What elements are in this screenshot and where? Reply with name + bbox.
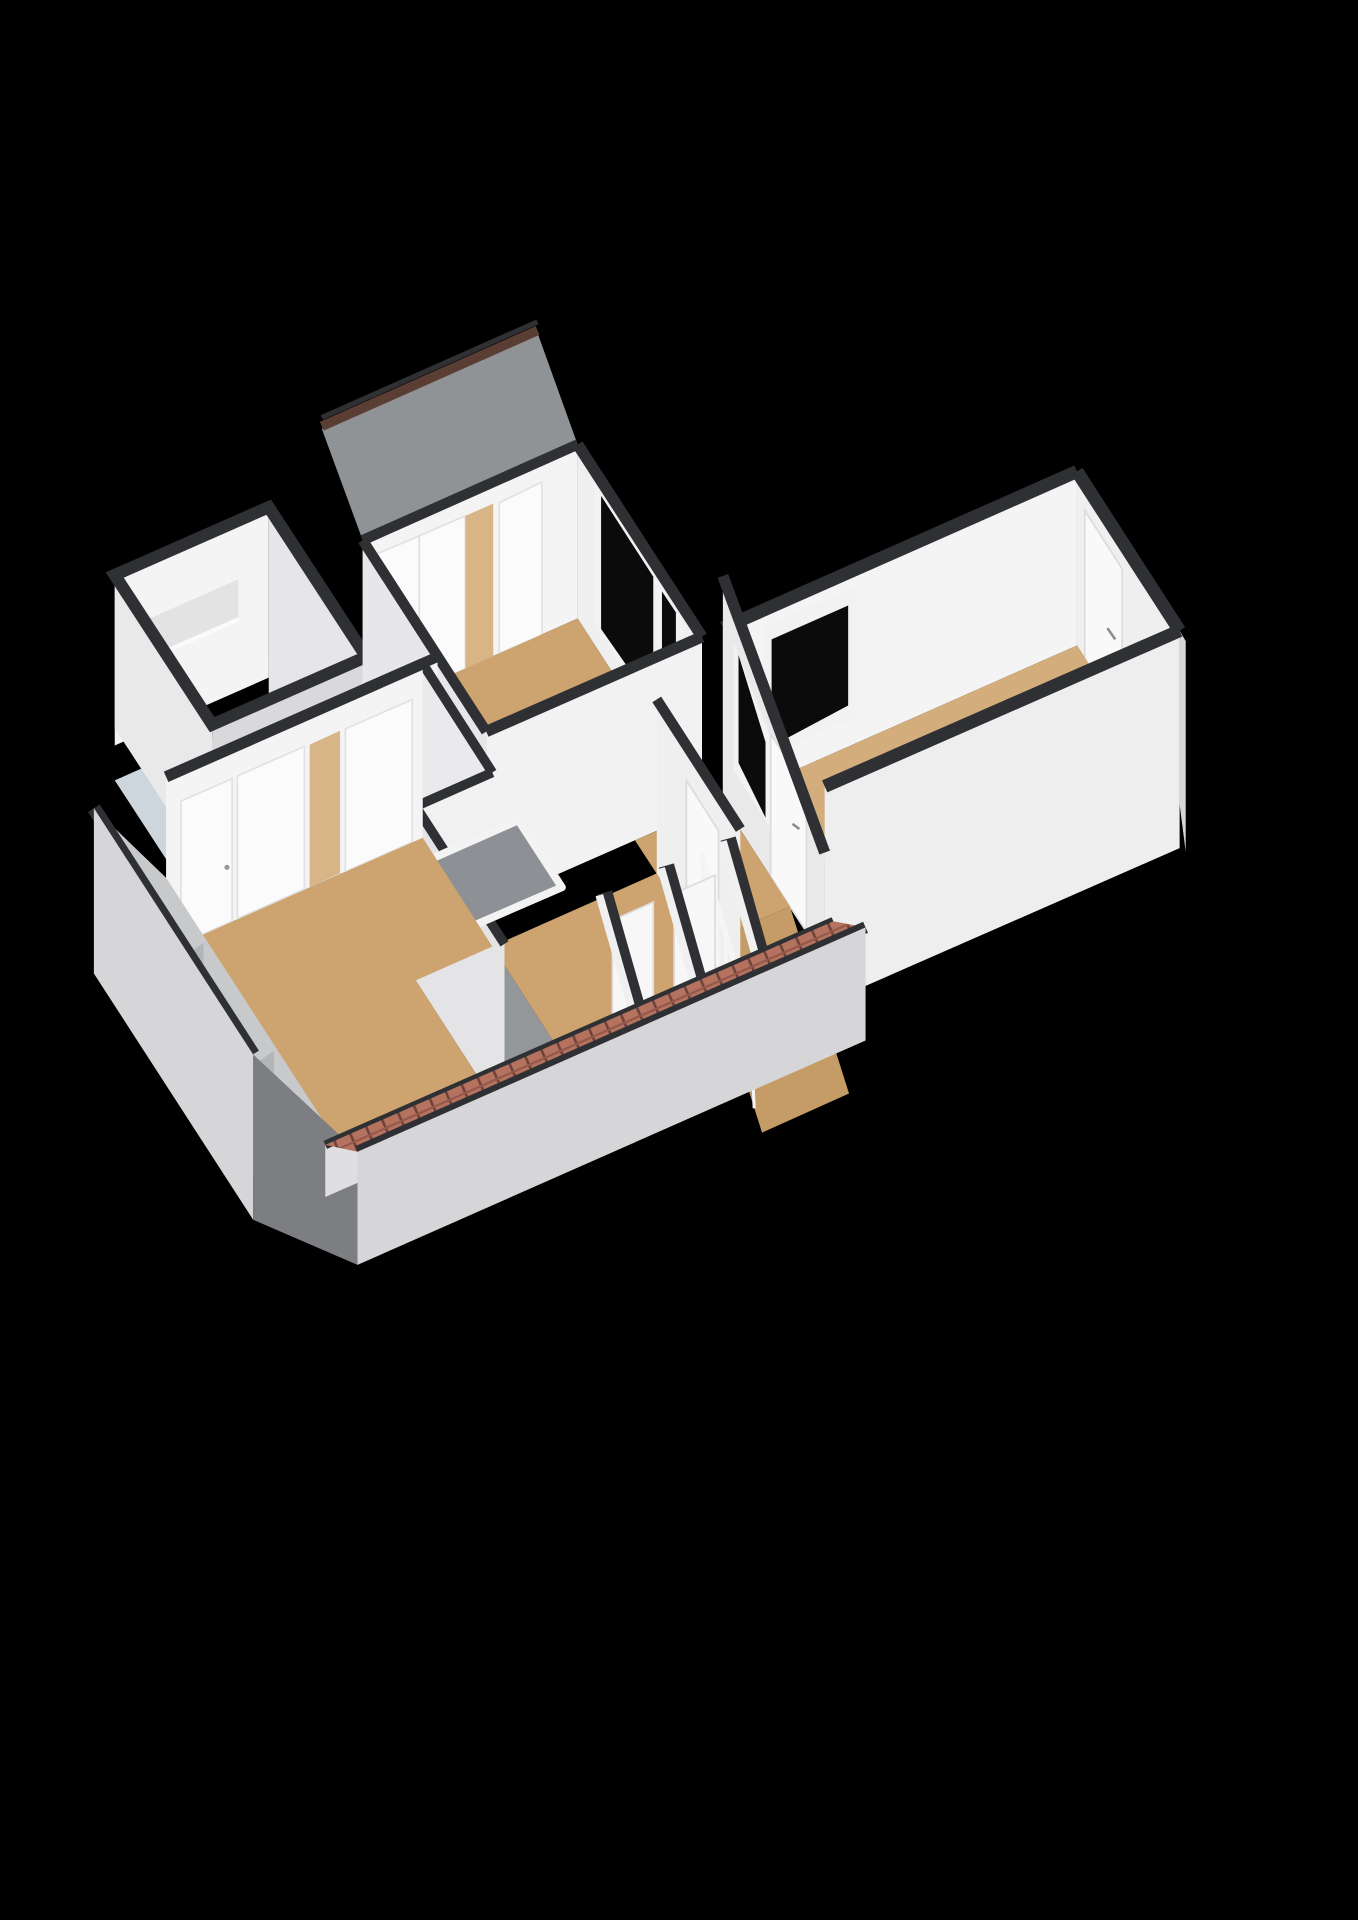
bigroom-closet-open-bay [310, 731, 340, 888]
bigroom-closet-door-1-handle [224, 865, 229, 870]
bedroom-closet-open-bay [465, 504, 493, 669]
bigroom-closet-panel-3 [345, 699, 412, 871]
bedroom-closet-door-3 [499, 482, 542, 653]
floorplan-canvas [0, 0, 1358, 1920]
floorplan-3d-render [0, 0, 1358, 1920]
bigroom-closet-panel-2 [237, 746, 304, 918]
